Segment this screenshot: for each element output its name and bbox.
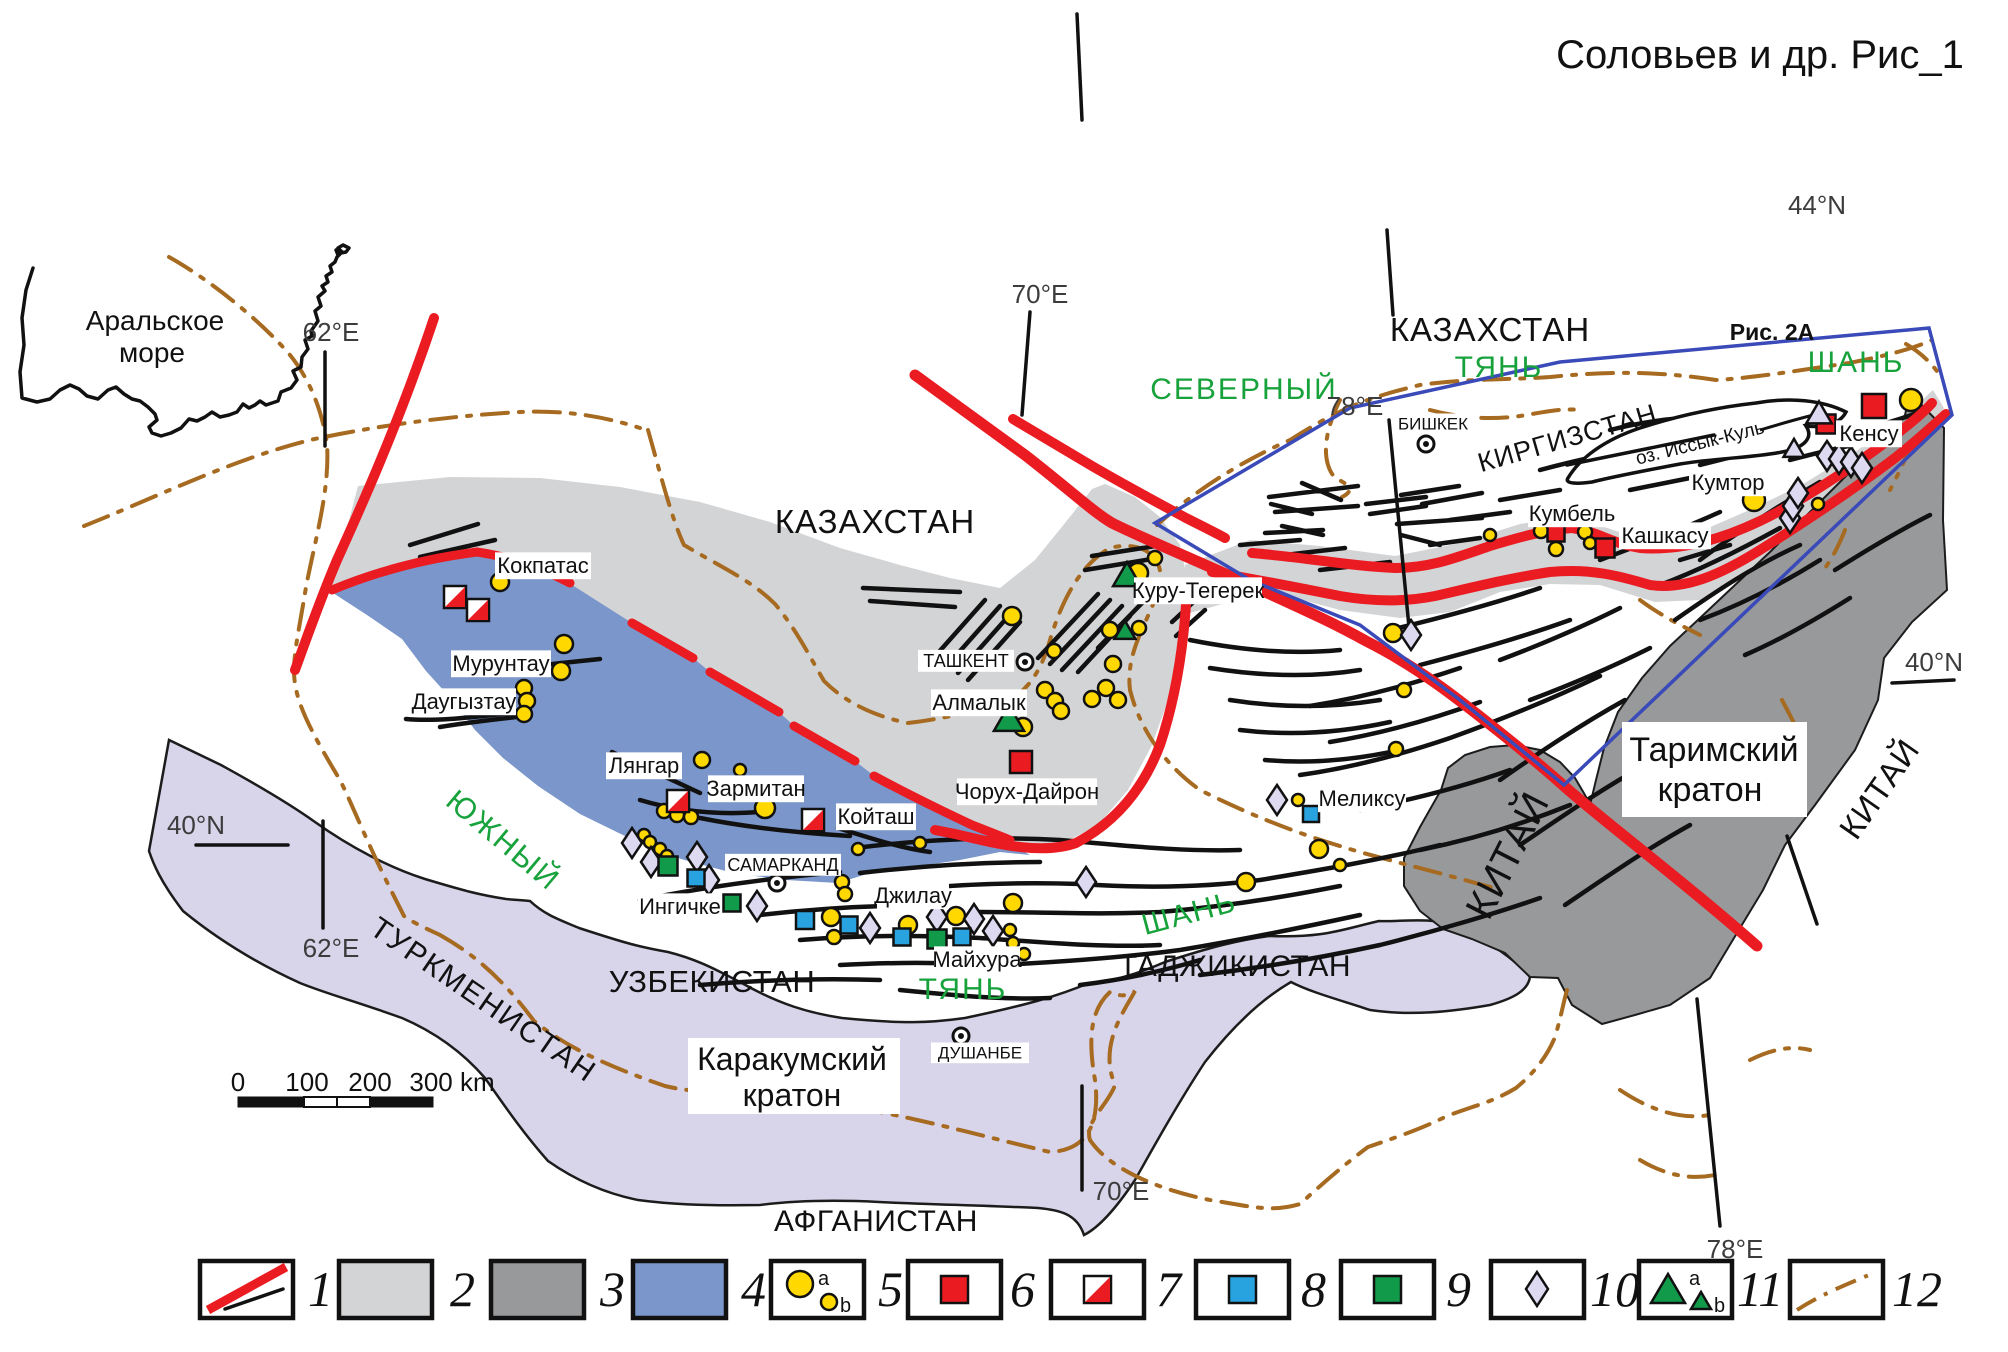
svg-text:ТАШКЕНТ: ТАШКЕНТ [923,651,1008,671]
svg-text:62°E: 62°E [303,317,360,347]
svg-text:Джилау: Джилау [874,883,952,908]
svg-text:Лянгар: Лянгар [609,753,680,778]
svg-text:КАЗАХСТАН: КАЗАХСТАН [775,503,975,540]
svg-text:кратон: кратон [743,1077,842,1113]
svg-text:6: 6 [1010,1261,1035,1317]
svg-text:ШАНЬ: ШАНЬ [1808,346,1905,379]
svg-text:БИШКЕК: БИШКЕК [1398,414,1468,433]
svg-text:Куру-Тегерек: Куру-Тегерек [1132,578,1265,603]
svg-text:Кенсу: Кенсу [1839,421,1898,446]
svg-text:Кумтор: Кумтор [1692,470,1765,495]
svg-text:40°N: 40°N [1905,647,1963,677]
svg-text:Мурунтау: Мурунтау [452,651,549,676]
svg-text:ТЯНЬ: ТЯНЬ [919,973,1008,1006]
svg-text:1: 1 [308,1261,333,1317]
svg-text:САМАРКАНД: САМАРКАНД [727,855,838,875]
svg-text:Зармитан: Зармитан [706,776,805,801]
svg-text:Соловьев и др. Рис_1: Соловьев и др. Рис_1 [1556,33,1964,77]
svg-text:200: 200 [348,1067,391,1097]
svg-text:9: 9 [1446,1261,1471,1317]
svg-text:a: a [1689,1268,1701,1290]
svg-text:ДУШАНБЕ: ДУШАНБЕ [938,1043,1022,1062]
svg-text:Чорух-Дайрон: Чорух-Дайрон [955,779,1099,804]
svg-text:8: 8 [1301,1261,1326,1317]
svg-text:Ингичке: Ингичке [639,894,721,919]
svg-text:Каракумский: Каракумский [697,1041,887,1077]
svg-text:44°N: 44°N [1788,190,1846,220]
svg-text:100: 100 [285,1067,328,1097]
svg-text:10: 10 [1590,1261,1640,1317]
svg-text:УЗБЕКИСТАН: УЗБЕКИСТАН [609,964,815,999]
svg-text:Таримский: Таримский [1629,731,1798,769]
svg-text:Аральское: Аральское [86,305,224,336]
svg-text:Кашкасу: Кашкасу [1621,523,1708,548]
svg-text:70°E: 70°E [1012,279,1069,309]
svg-text:Рис. 2А: Рис. 2А [1730,319,1814,345]
svg-text:b: b [1714,1295,1725,1317]
svg-text:море: море [119,337,185,368]
svg-text:Меликсу: Меликсу [1318,786,1405,811]
svg-text:12: 12 [1892,1261,1942,1317]
svg-text:СЕВЕРНЫЙ: СЕВЕРНЫЙ [1150,372,1338,406]
svg-text:300 km: 300 km [409,1067,494,1097]
svg-text:40°N: 40°N [167,810,225,840]
svg-text:АФГАНИСТАН: АФГАНИСТАН [774,1205,978,1238]
svg-text:Майхура: Майхура [932,947,1022,972]
svg-text:Кокпатас: Кокпатас [497,553,588,578]
svg-text:2: 2 [450,1261,475,1317]
svg-text:11: 11 [1737,1261,1783,1317]
svg-text:62°E: 62°E [303,933,360,963]
svg-text:78°E: 78°E [1327,391,1384,421]
svg-text:Даугызтау: Даугызтау [412,689,517,714]
svg-text:кратон: кратон [1658,771,1763,809]
svg-text:КАЗАХСТАН: КАЗАХСТАН [1390,311,1590,348]
svg-text:ТАДЖИКИСТАН: ТАДЖИКИСТАН [1119,950,1351,983]
svg-text:70°E: 70°E [1093,1176,1150,1206]
svg-text:Алмалык: Алмалык [932,690,1026,715]
svg-text:Койташ: Койташ [837,804,914,829]
svg-text:3: 3 [599,1261,625,1317]
svg-text:0: 0 [231,1067,245,1097]
svg-text:ТЯНЬ: ТЯНЬ [1455,351,1544,384]
svg-text:4: 4 [741,1261,766,1317]
svg-text:5: 5 [878,1261,903,1317]
svg-text:Кумбель: Кумбель [1529,501,1616,526]
svg-text:b: b [840,1295,851,1317]
svg-text:a: a [818,1268,830,1290]
svg-text:7: 7 [1156,1261,1183,1317]
